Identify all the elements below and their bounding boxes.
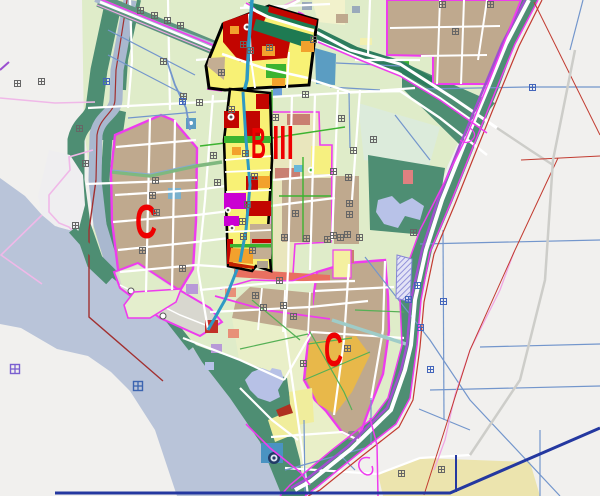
svg-text:C: C [324,324,343,377]
svg-text:C: C [135,196,157,249]
svg-text:B: B [251,119,266,168]
